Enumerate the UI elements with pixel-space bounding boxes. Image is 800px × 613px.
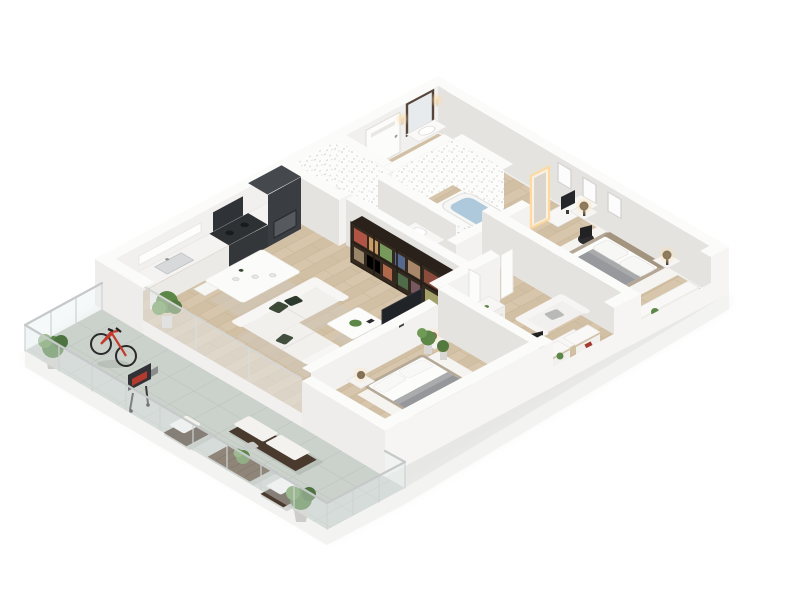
door-leaf (501, 248, 513, 299)
floor-plan-render (0, 0, 800, 613)
illuminated-mirror (531, 167, 549, 228)
apartment-3d-plan (0, 0, 800, 613)
